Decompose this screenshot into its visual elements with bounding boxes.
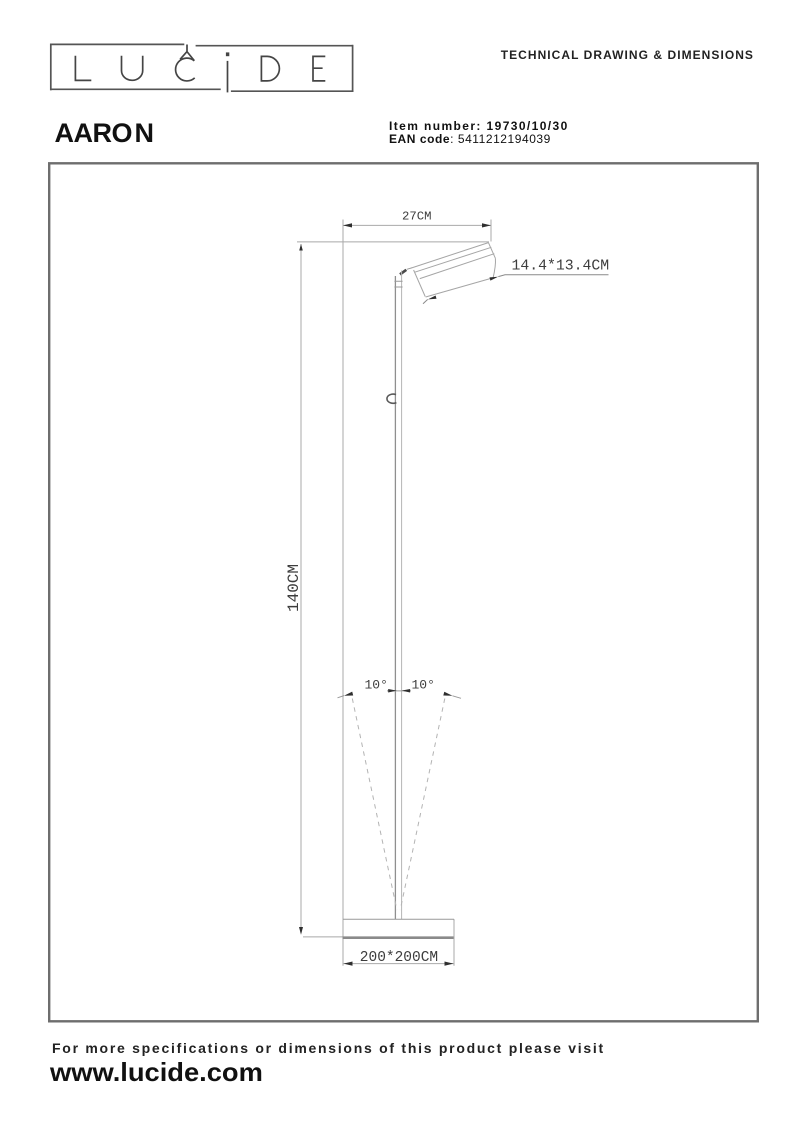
svg-text:140CM: 140CM	[285, 564, 303, 612]
svg-text:10°: 10°	[365, 678, 388, 693]
svg-text:27CM: 27CM	[402, 210, 432, 224]
svg-text:10°: 10°	[412, 678, 435, 693]
svg-text:14.4*13.4CM: 14.4*13.4CM	[512, 259, 610, 275]
svg-text:200*200CM: 200*200CM	[360, 950, 438, 966]
